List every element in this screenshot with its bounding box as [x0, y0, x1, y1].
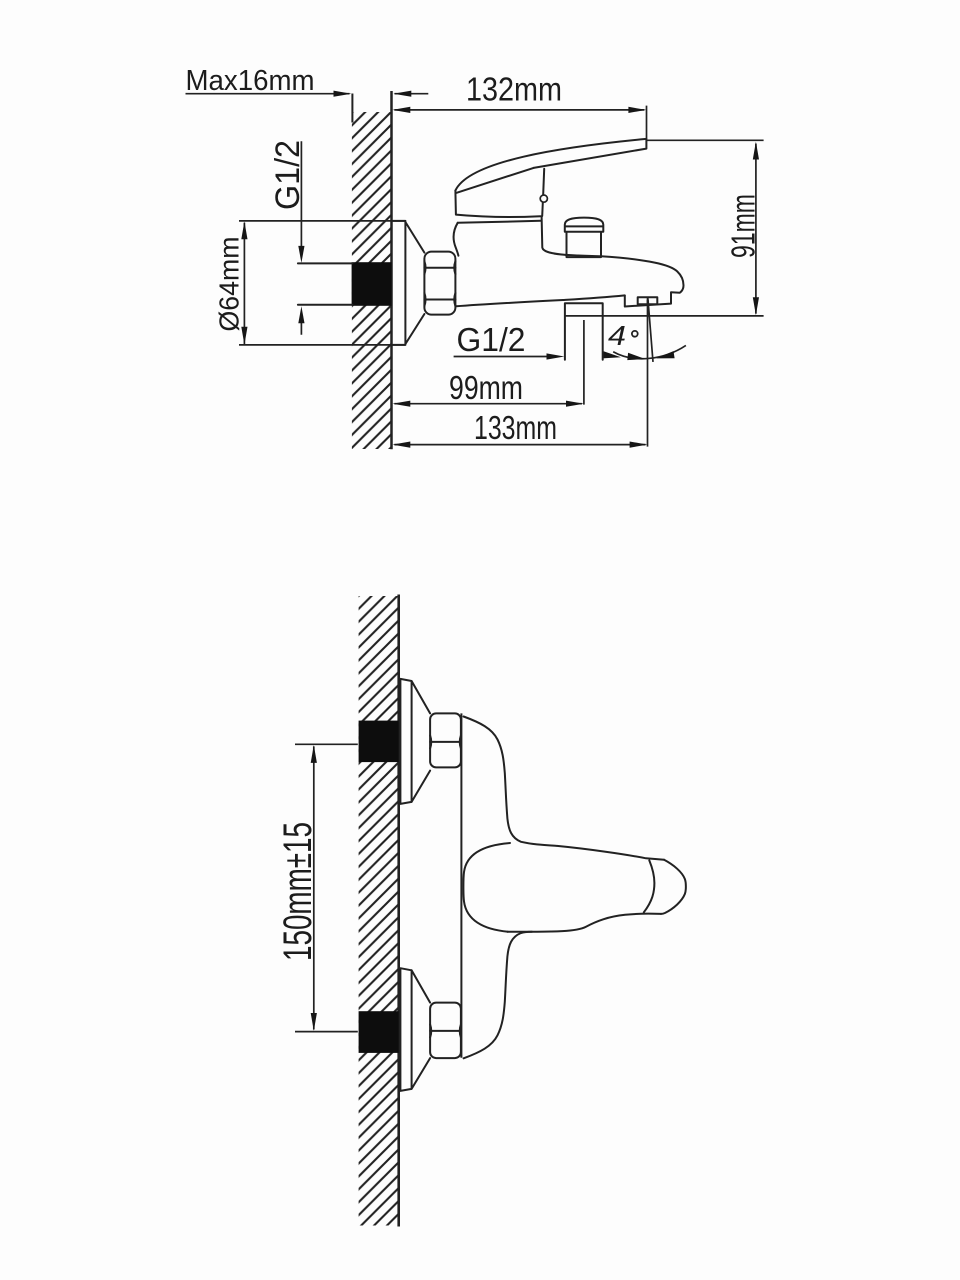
svg-text:133mm: 133mm [474, 409, 557, 446]
svg-text:132mm: 132mm [466, 71, 562, 108]
svg-text:4: 4 [608, 320, 626, 351]
svg-text:91mm: 91mm [725, 194, 762, 258]
svg-text:G1/2: G1/2 [269, 140, 307, 210]
svg-text:Max16mm: Max16mm [186, 65, 315, 97]
svg-text:99mm: 99mm [449, 369, 523, 406]
svg-text:G1/2: G1/2 [457, 321, 526, 358]
svg-text:Ø64mm: Ø64mm [214, 237, 245, 332]
